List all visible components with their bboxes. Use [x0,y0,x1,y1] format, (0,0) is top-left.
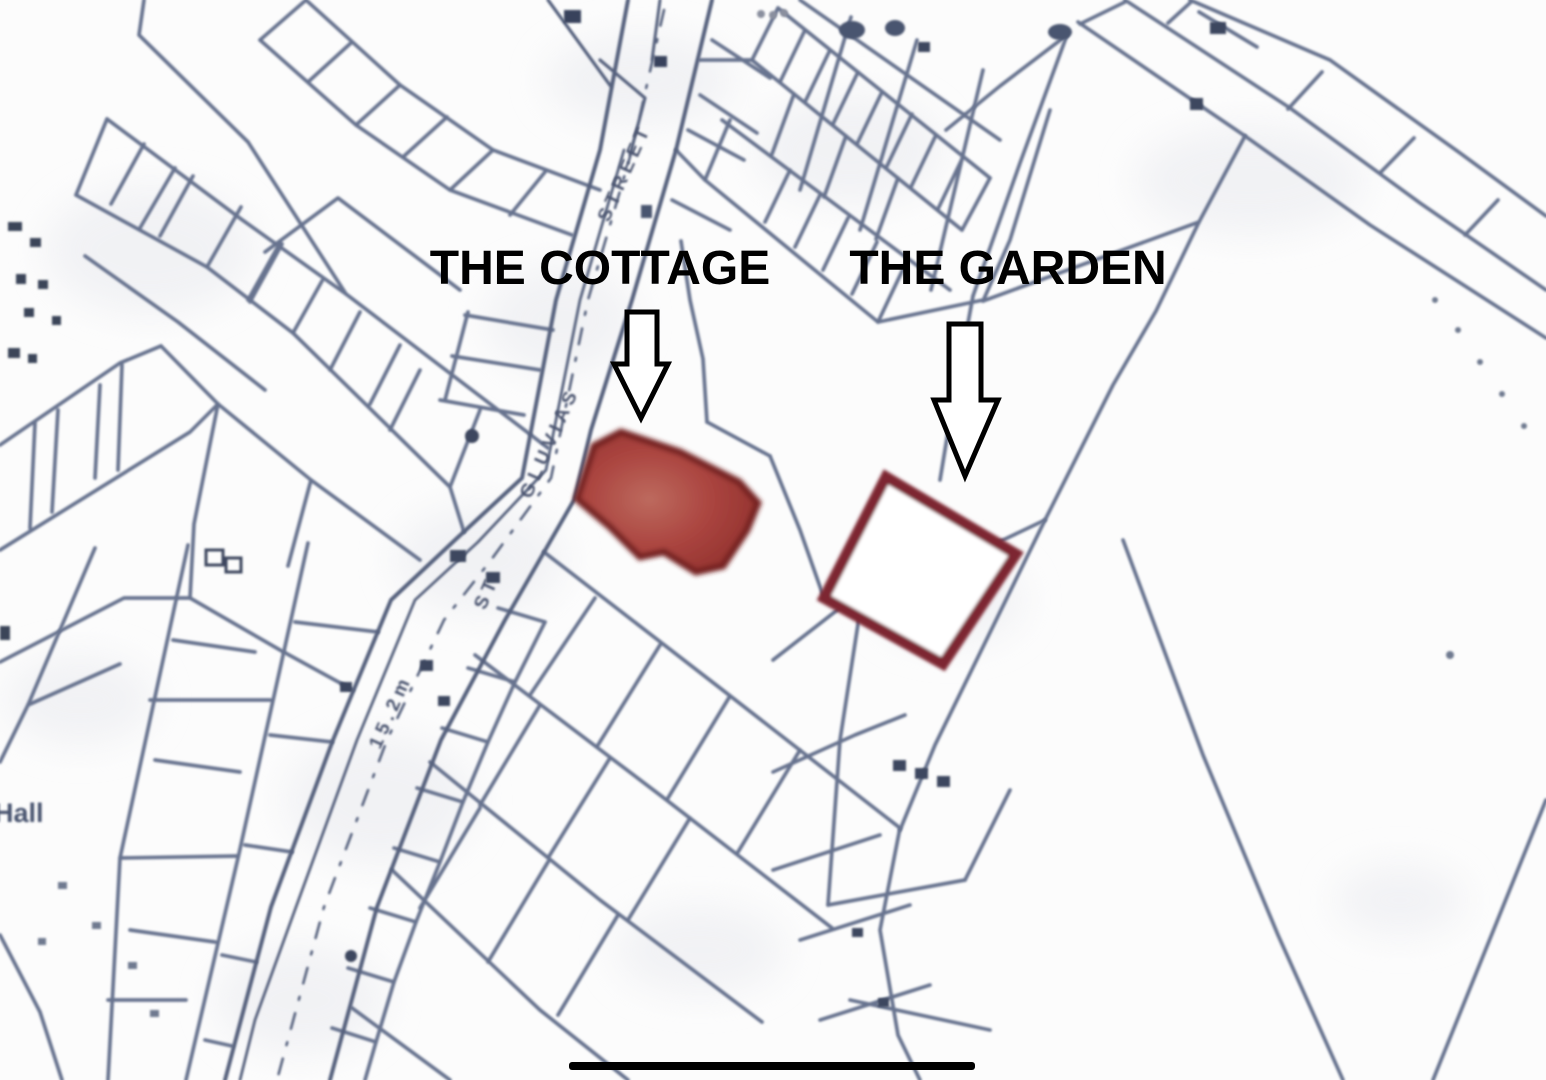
svg-text:THE COTTAGE: THE COTTAGE [430,242,770,295]
svg-text:THE GARDEN: THE GARDEN [849,242,1166,295]
svg-text:Hall: Hall [0,798,44,828]
